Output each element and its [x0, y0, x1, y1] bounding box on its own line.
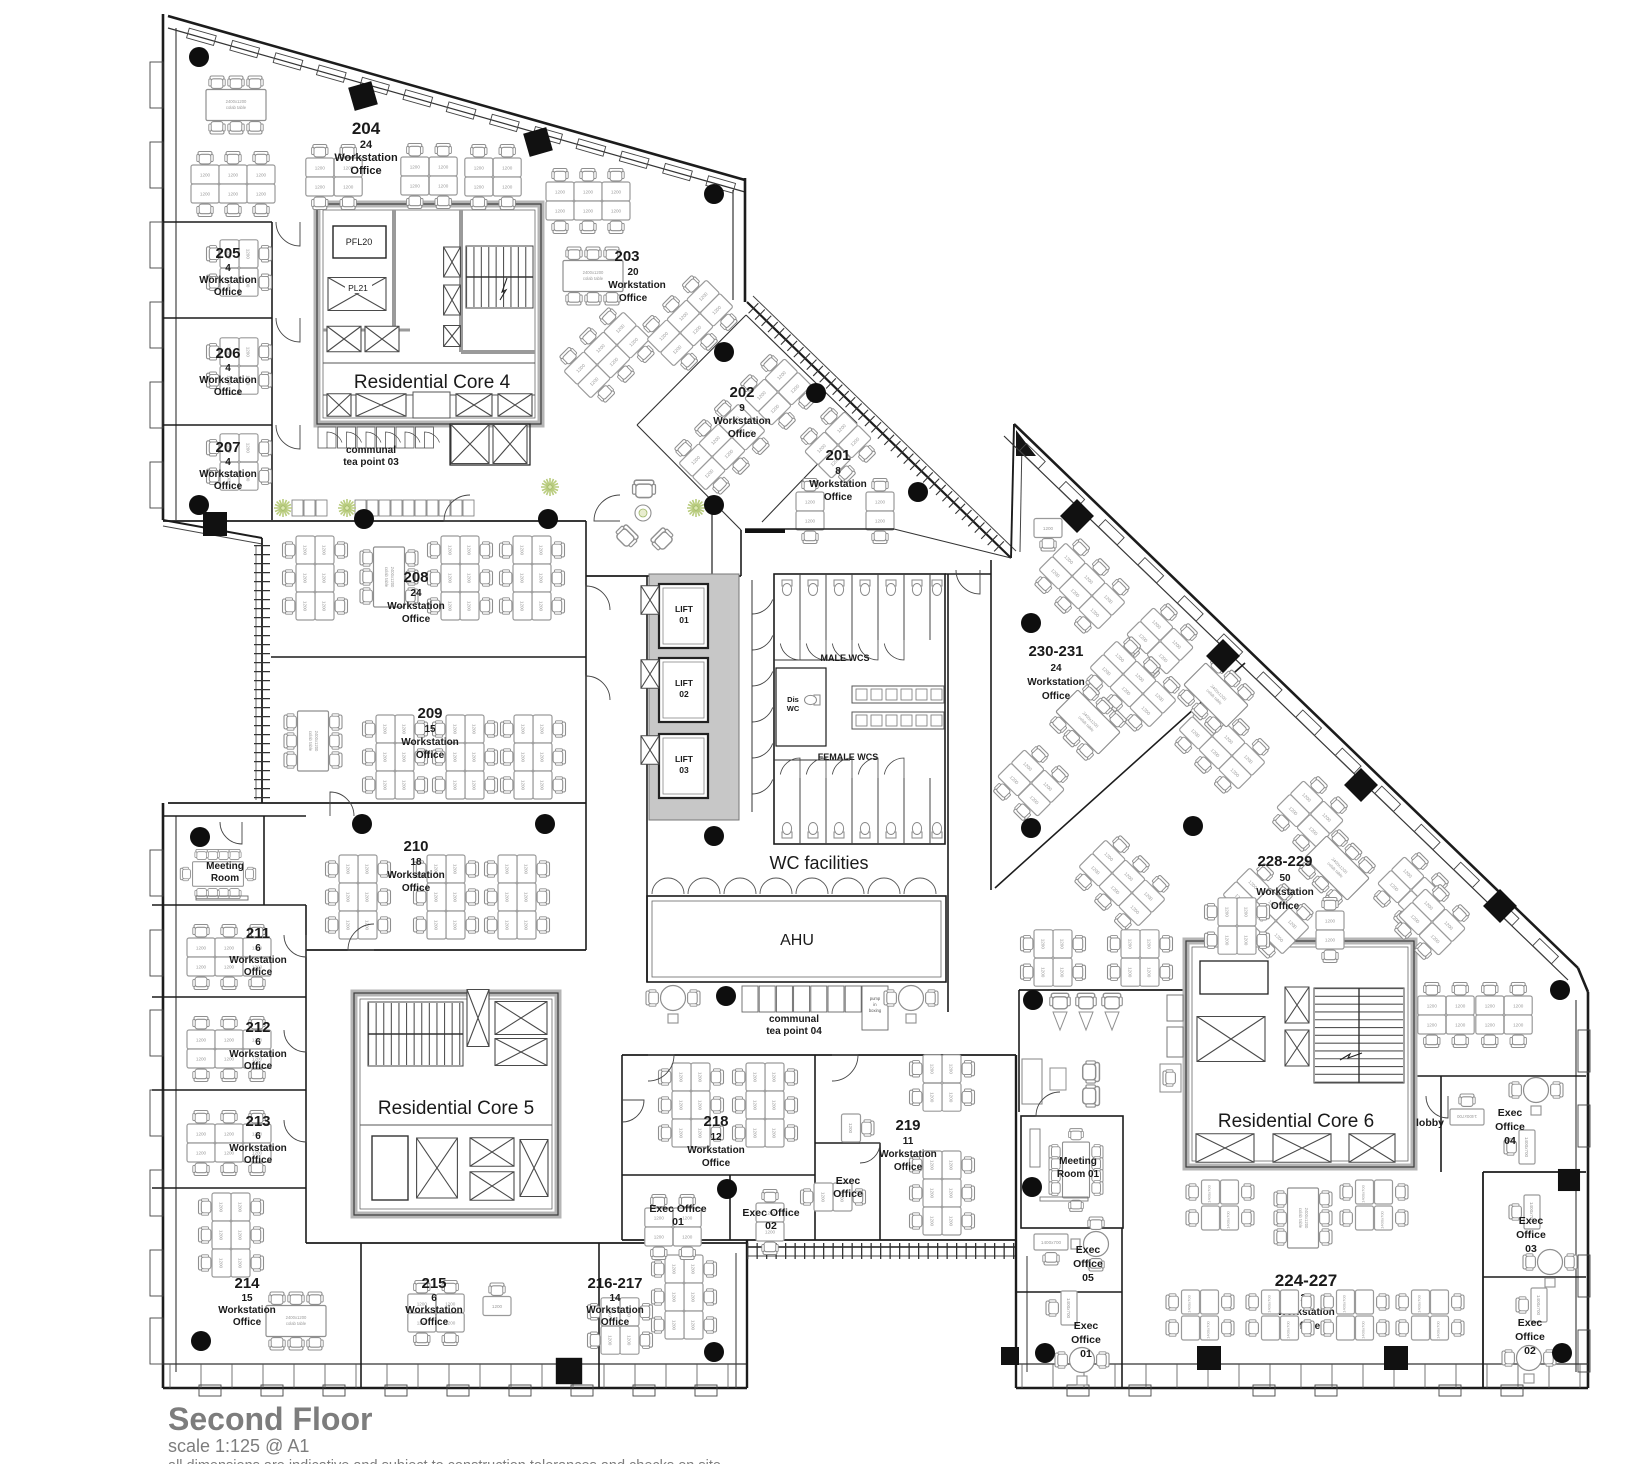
svg-text:Office: Office [619, 293, 648, 304]
svg-text:Workstation: Workstation [405, 1305, 463, 1316]
svg-text:WC facilities: WC facilities [769, 853, 868, 873]
svg-text:24: 24 [1050, 663, 1062, 674]
svg-text:15: 15 [424, 724, 436, 735]
svg-text:tea point 03: tea point 03 [343, 457, 399, 468]
svg-text:50: 50 [1279, 873, 1291, 884]
svg-text:scale 1:125 @ A1: scale 1:125 @ A1 [168, 1436, 309, 1456]
svg-text:9: 9 [739, 403, 745, 414]
svg-text:Exec Office: Exec Office [649, 1203, 706, 1215]
svg-text:Office: Office [244, 967, 273, 978]
svg-text:Workstation: Workstation [586, 1305, 644, 1316]
svg-text:Exec: Exec [1076, 1244, 1101, 1256]
svg-text:6: 6 [255, 1131, 261, 1142]
svg-text:Workstation: Workstation [879, 1149, 937, 1160]
svg-text:lobby: lobby [1416, 1117, 1444, 1129]
svg-text:03: 03 [679, 765, 689, 775]
svg-text:Office: Office [1271, 901, 1300, 912]
svg-text:206: 206 [215, 345, 240, 362]
svg-text:Workstation: Workstation [229, 1049, 287, 1060]
svg-text:Residential Core 6: Residential Core 6 [1218, 1111, 1374, 1132]
svg-text:Office: Office [350, 165, 381, 177]
svg-text:Workstation: Workstation [199, 469, 257, 480]
svg-text:01: 01 [1080, 1348, 1092, 1360]
svg-text:Exec: Exec [1074, 1320, 1099, 1332]
svg-text:209: 209 [417, 705, 442, 722]
svg-text:Second Floor: Second Floor [168, 1401, 372, 1437]
svg-text:Residential Core 4: Residential Core 4 [354, 372, 511, 393]
svg-text:11: 11 [903, 1136, 914, 1147]
svg-text:Office: Office [214, 481, 243, 492]
svg-text:02: 02 [765, 1220, 777, 1232]
svg-text:Exec: Exec [1518, 1317, 1543, 1329]
svg-text:207: 207 [215, 439, 240, 456]
svg-text:FEMALE WCS: FEMALE WCS [818, 752, 879, 762]
svg-text:05: 05 [1082, 1272, 1094, 1284]
svg-text:205: 205 [215, 245, 240, 262]
svg-text:Workstation: Workstation [387, 870, 445, 881]
svg-text:all dimensions are indicative: all dimensions are indicative and subjec… [168, 1458, 721, 1464]
svg-text:Workstation: Workstation [608, 280, 666, 291]
svg-text:Workstation: Workstation [1256, 887, 1314, 898]
svg-text:6: 6 [255, 943, 261, 954]
svg-text:Office: Office [1042, 691, 1071, 702]
svg-text:204: 204 [352, 119, 381, 138]
svg-text:04: 04 [1504, 1135, 1516, 1147]
svg-text:4: 4 [225, 457, 231, 468]
svg-text:MALE WCS: MALE WCS [821, 653, 870, 663]
svg-text:Office: Office [702, 1158, 731, 1169]
svg-text:Office: Office [1071, 1334, 1101, 1346]
svg-text:Office: Office [402, 614, 431, 625]
svg-text:Office: Office [420, 1317, 449, 1328]
svg-text:Office: Office [833, 1188, 863, 1200]
svg-text:224-227: 224-227 [1275, 1271, 1337, 1290]
svg-text:01: 01 [672, 1216, 684, 1228]
svg-text:Workstation: Workstation [687, 1145, 745, 1156]
svg-text:Office: Office [244, 1155, 273, 1166]
svg-text:WC: WC [787, 704, 800, 713]
svg-text:Office: Office [1073, 1258, 1103, 1270]
svg-text:4: 4 [225, 363, 231, 374]
svg-text:208: 208 [403, 569, 428, 586]
svg-text:Workstation: Workstation [229, 1143, 287, 1154]
svg-text:Office: Office [1495, 1121, 1525, 1133]
svg-text:01: 01 [679, 615, 689, 625]
svg-text:203: 203 [614, 248, 639, 265]
svg-text:230-231: 230-231 [1028, 643, 1083, 660]
svg-text:Dis: Dis [787, 695, 799, 704]
svg-text:211: 211 [246, 925, 270, 942]
svg-text:24: 24 [360, 139, 373, 151]
svg-text:24: 24 [410, 588, 422, 599]
svg-text:202: 202 [729, 384, 754, 401]
svg-text:Office: Office [728, 429, 757, 440]
svg-text:02: 02 [1524, 1345, 1536, 1357]
svg-text:228-229: 228-229 [1257, 853, 1312, 870]
svg-text:Meeting: Meeting [1059, 1156, 1097, 1167]
svg-text:Office: Office [244, 1061, 273, 1072]
svg-text:LIFT: LIFT [675, 754, 694, 764]
svg-text:Office: Office [894, 1162, 923, 1173]
svg-text:12: 12 [710, 1132, 722, 1143]
svg-text:212: 212 [245, 1019, 270, 1036]
svg-text:218: 218 [703, 1113, 728, 1130]
svg-text:8: 8 [835, 466, 841, 477]
svg-text:Exec: Exec [1498, 1107, 1523, 1119]
svg-text:Workstation: Workstation [1027, 677, 1085, 688]
svg-text:14: 14 [609, 1293, 621, 1304]
svg-text:18: 18 [410, 857, 422, 868]
svg-text:Room: Room [211, 873, 239, 884]
svg-text:20: 20 [627, 267, 639, 278]
svg-text:Workstation: Workstation [387, 601, 445, 612]
svg-text:boxing: boxing [869, 1008, 882, 1013]
svg-text:03: 03 [1525, 1243, 1537, 1255]
svg-text:213: 213 [245, 1113, 270, 1130]
svg-text:Workstation: Workstation [809, 479, 867, 490]
svg-text:LIFT: LIFT [675, 678, 694, 688]
svg-text:Office: Office [416, 750, 445, 761]
svg-text:communal: communal [769, 1014, 819, 1025]
svg-text:Workstation: Workstation [218, 1305, 276, 1316]
svg-text:6: 6 [255, 1037, 261, 1048]
svg-text:201: 201 [825, 447, 850, 464]
svg-text:Workstation: Workstation [229, 955, 287, 966]
svg-text:Workstation: Workstation [334, 152, 398, 164]
svg-text:Meeting: Meeting [206, 861, 244, 872]
svg-text:02: 02 [679, 689, 689, 699]
svg-text:Room 01: Room 01 [1057, 1169, 1100, 1180]
svg-text:Office: Office [1515, 1331, 1545, 1343]
svg-text:Office: Office [233, 1317, 262, 1328]
svg-text:Office: Office [824, 492, 853, 503]
svg-text:pump: pump [870, 996, 881, 1001]
svg-text:210: 210 [403, 838, 428, 855]
svg-text:214: 214 [234, 1275, 260, 1292]
svg-text:Exec Office: Exec Office [742, 1207, 799, 1219]
svg-text:Residential Core 5: Residential Core 5 [378, 1098, 534, 1119]
svg-text:4: 4 [225, 263, 231, 274]
svg-text:Workstation: Workstation [199, 275, 257, 286]
svg-text:215: 215 [421, 1275, 446, 1292]
svg-text:Workstation: Workstation [401, 737, 459, 748]
svg-text:Workstation: Workstation [199, 375, 257, 386]
svg-text:tea point 04: tea point 04 [766, 1026, 822, 1037]
svg-text:PL21: PL21 [348, 283, 368, 293]
svg-text:219: 219 [895, 1117, 920, 1134]
svg-text:AHU: AHU [780, 932, 814, 949]
svg-text:6: 6 [431, 1293, 437, 1304]
svg-text:Office: Office [402, 883, 431, 894]
svg-text:Office: Office [214, 287, 243, 298]
svg-text:Exec: Exec [1519, 1215, 1544, 1227]
svg-text:Office: Office [601, 1317, 630, 1328]
svg-text:communal: communal [346, 445, 396, 456]
svg-text:LIFT: LIFT [675, 604, 694, 614]
svg-text:Office: Office [214, 387, 243, 398]
svg-text:Exec: Exec [836, 1175, 861, 1187]
svg-text:PFL20: PFL20 [346, 237, 373, 247]
svg-text:15: 15 [241, 1293, 253, 1304]
svg-text:216-217: 216-217 [587, 1275, 642, 1292]
svg-text:Workstation: Workstation [713, 416, 771, 427]
svg-text:Office: Office [1516, 1229, 1546, 1241]
